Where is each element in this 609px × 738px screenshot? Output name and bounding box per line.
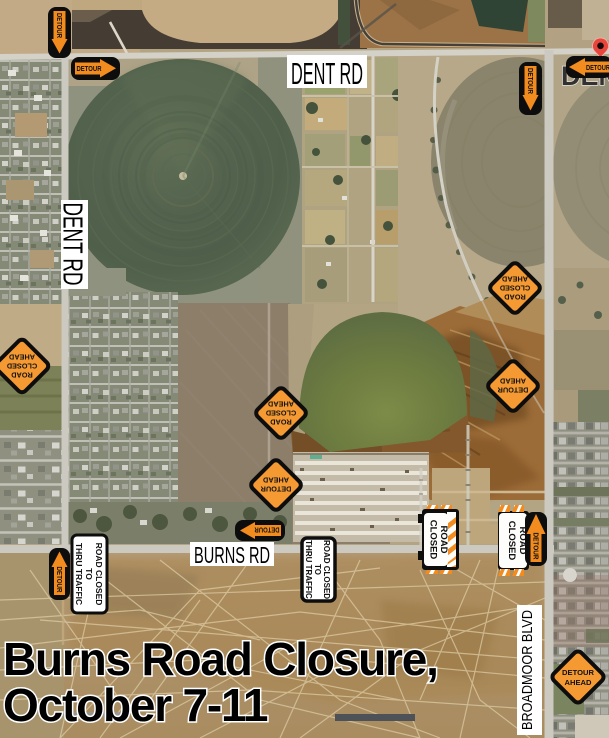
svg-text:DETOUR: DETOUR: [497, 386, 528, 395]
svg-text:DETOUR: DETOUR: [55, 567, 64, 593]
svg-text:DETOUR: DETOUR: [532, 533, 541, 560]
svg-text:TO: TO: [313, 564, 322, 575]
svg-text:TO: TO: [84, 568, 94, 580]
svg-text:Burns Road Closure,: Burns Road Closure,: [3, 633, 438, 685]
svg-text:DENT RD: DENT RD: [291, 56, 363, 91]
svg-text:ROAD: ROAD: [270, 418, 292, 427]
svg-text:October 7-11: October 7-11: [3, 679, 268, 731]
svg-text:ROAD: ROAD: [11, 371, 33, 380]
svg-text:THRU TRAFFIC: THRU TRAFFIC: [304, 540, 313, 599]
svg-text:ROAD CLOSED: ROAD CLOSED: [322, 540, 331, 599]
svg-text:DETOUR: DETOUR: [55, 13, 64, 38]
svg-text:BROADMOOR BLVD: BROADMOOR BLVD: [519, 610, 536, 730]
svg-text:BURNS RD: BURNS RD: [194, 542, 270, 568]
svg-text:ROAD: ROAD: [504, 293, 526, 302]
svg-text:DETOUR: DETOUR: [260, 485, 291, 494]
svg-text:AHEAD: AHEAD: [9, 353, 35, 362]
svg-text:CLOSED: CLOSED: [7, 362, 37, 371]
svg-text:ROAD CLOSED: ROAD CLOSED: [94, 543, 104, 606]
svg-text:THRU TRAFFIC: THRU TRAFFIC: [74, 543, 84, 605]
svg-text:AHEAD: AHEAD: [500, 377, 526, 386]
svg-text:DENT RD: DENT RD: [58, 203, 89, 286]
svg-text:AHEAD: AHEAD: [502, 275, 528, 284]
svg-text:ROAD: ROAD: [438, 526, 449, 554]
svg-text:DETOUR: DETOUR: [254, 526, 279, 535]
svg-text:CLOSED: CLOSED: [428, 520, 439, 560]
svg-text:DETOUR: DETOUR: [586, 63, 609, 72]
svg-text:DETOUR: DETOUR: [526, 68, 535, 94]
svg-text:CLOSED: CLOSED: [506, 521, 517, 561]
svg-text:AHEAD: AHEAD: [263, 476, 289, 485]
svg-text:AHEAD: AHEAD: [268, 400, 294, 409]
svg-text:DETOUR: DETOUR: [562, 668, 594, 677]
svg-text:CLOSED: CLOSED: [500, 284, 530, 293]
svg-text:AHEAD: AHEAD: [564, 678, 592, 687]
svg-text:CLOSED: CLOSED: [266, 409, 296, 418]
svg-text:DETOUR: DETOUR: [77, 64, 102, 73]
